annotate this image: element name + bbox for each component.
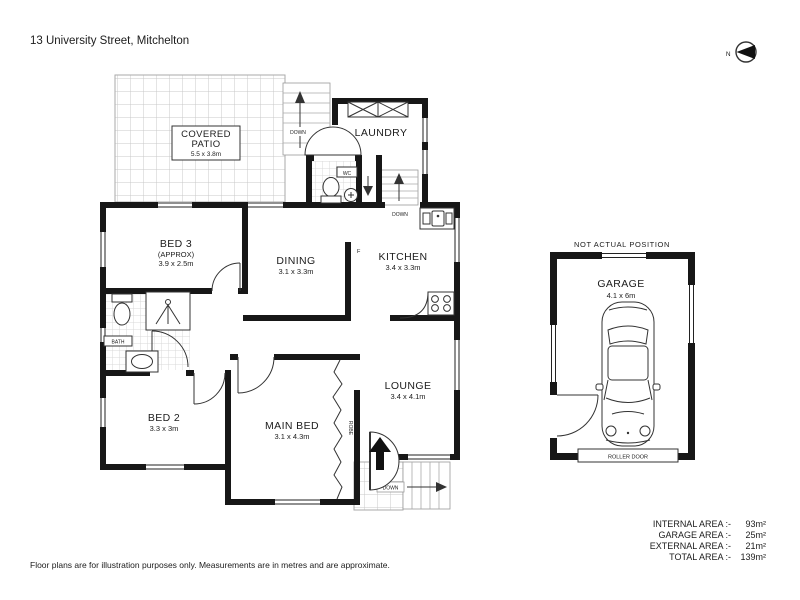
roller-door-label: ROLLER DOOR [608, 455, 648, 461]
wc-label: WC [343, 171, 352, 177]
bed3-door [212, 263, 240, 291]
garage-position-note: NOT ACTUAL POSITION [574, 240, 670, 249]
room-label-main-bed: MAIN BED 3.1 x 4.3m [265, 420, 319, 441]
page-title: 13 University Street, Mitchelton [30, 35, 189, 47]
svg-text:PATIO: PATIO [191, 139, 220, 150]
svg-text:LOUNGE: LOUNGE [385, 380, 432, 392]
area-row-label: GARAGE AREA :- [658, 530, 731, 540]
room-label-lounge: LOUNGE 3.4 x 4.1m [385, 380, 432, 401]
area-row-value: 21m² [745, 541, 766, 551]
area-row-label: TOTAL AREA :- [669, 552, 731, 562]
svg-text:3.4 x 3.3m: 3.4 x 3.3m [385, 263, 420, 272]
area-row-value: 139m² [740, 552, 766, 562]
room-label-dining: DINING 3.1 x 3.3m [276, 255, 315, 276]
svg-text:DINING: DINING [276, 255, 315, 267]
patio-label: COVERED PATIO 5.5 x 3.8m [172, 126, 240, 160]
toilet-icon [112, 294, 132, 302]
svg-text:BED 3: BED 3 [160, 238, 192, 250]
bed2-door [194, 373, 225, 404]
svg-text:3.3 x 3m: 3.3 x 3m [150, 424, 179, 433]
garage-door [557, 395, 598, 436]
svg-text:KITCHEN: KITCHEN [379, 251, 428, 263]
svg-text:3.1 x 4.3m: 3.1 x 4.3m [274, 432, 309, 441]
landing-step-arrow [363, 176, 373, 196]
robe-label: ROBE [347, 421, 353, 436]
laundry-tub-icon [348, 102, 408, 117]
disclaimer: Floor plans are for illustration purpose… [30, 560, 390, 570]
svg-text:GARAGE: GARAGE [597, 278, 644, 290]
floor-plan-canvas: 13 University Street, Mitchelton N DOWN … [0, 0, 800, 600]
stove-icon [400, 292, 454, 318]
room-label-laundry: LAUNDRY [355, 127, 408, 139]
area-row-label: EXTERNAL AREA :- [650, 541, 731, 551]
svg-text:5.5 x 3.8m: 5.5 x 3.8m [191, 151, 221, 158]
room-label-bed3: BED 3 (APPROX) 3.9 x 2.5m [158, 238, 195, 268]
svg-text:BED 2: BED 2 [148, 412, 180, 424]
area-row-label: INTERNAL AREA :- [653, 519, 731, 529]
entry-arrow-icon [376, 450, 384, 470]
sink-icon [420, 208, 454, 229]
area-row-value: 25m² [745, 530, 766, 540]
area-row-value: 93m² [745, 519, 766, 529]
car-icon [596, 302, 660, 446]
svg-text:3.4 x 4.1m: 3.4 x 4.1m [390, 392, 425, 401]
room-label-bed2: BED 2 3.3 x 3m [148, 412, 180, 433]
roller-door: ROLLER DOOR [578, 449, 678, 462]
svg-text:3.9 x 2.5m: 3.9 x 2.5m [158, 259, 193, 268]
compass-label: N [726, 51, 731, 58]
toilet-icon [323, 178, 339, 197]
bath-label: BATH [112, 340, 125, 346]
svg-text:(APPROX): (APPROX) [158, 250, 195, 259]
fridge-label: F [357, 249, 361, 255]
down-label: DOWN [392, 212, 408, 218]
room-label-garage: GARAGE 4.1 x 6m [597, 278, 644, 300]
room-label-kitchen: KITCHEN 3.4 x 3.3m [379, 251, 428, 272]
main-bed-door [238, 357, 274, 393]
robe: ROBE [333, 360, 353, 499]
down-label: DOWN [290, 130, 306, 136]
north-arrow-icon: N [726, 42, 756, 62]
internal-stairs: DOWN [380, 170, 418, 218]
svg-text:3.1 x 3.3m: 3.1 x 3.3m [278, 267, 313, 276]
area-table: INTERNAL AREA :- 93m² GARAGE AREA :- 25m… [650, 519, 766, 562]
svg-text:4.1 x 6m: 4.1 x 6m [607, 291, 636, 300]
svg-text:MAIN BED: MAIN BED [265, 420, 319, 432]
